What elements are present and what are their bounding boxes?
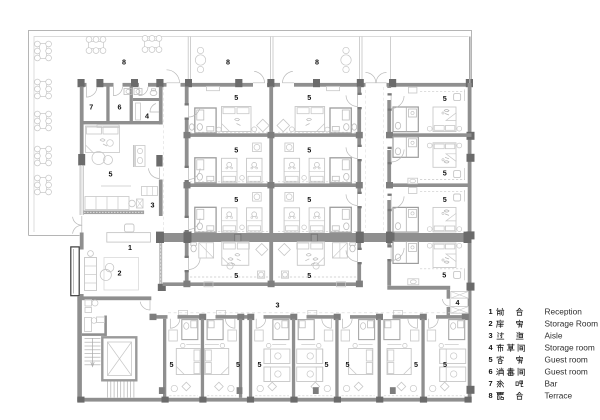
svg-text:5: 5 (488, 355, 492, 364)
svg-text:5: 5 (307, 271, 311, 280)
svg-text:5: 5 (346, 360, 350, 369)
svg-text:5: 5 (307, 146, 311, 155)
svg-text:6: 6 (488, 367, 492, 376)
svg-text:6: 6 (118, 103, 122, 112)
svg-text:5: 5 (443, 94, 447, 103)
svg-text:5: 5 (443, 169, 447, 178)
svg-text:8: 8 (226, 58, 230, 67)
svg-text:5: 5 (258, 360, 262, 369)
svg-text:5: 5 (234, 93, 238, 102)
svg-text:5: 5 (414, 360, 418, 369)
svg-text:5: 5 (170, 360, 174, 369)
svg-text:7: 7 (488, 379, 492, 388)
svg-text:1: 1 (128, 243, 132, 252)
svg-text:5: 5 (109, 170, 113, 179)
svg-text:5: 5 (307, 195, 311, 204)
svg-text:5: 5 (234, 195, 238, 204)
svg-text:8: 8 (315, 58, 319, 67)
svg-text:5: 5 (442, 271, 446, 280)
svg-text:3: 3 (151, 201, 155, 210)
svg-text:5: 5 (443, 360, 447, 369)
svg-text:5: 5 (443, 195, 447, 204)
svg-text:Guest room: Guest room (545, 354, 588, 364)
svg-text:Aisle: Aisle (545, 330, 563, 340)
svg-text:3: 3 (276, 301, 280, 310)
svg-text:Storage Room: Storage Room (545, 318, 599, 328)
svg-text:5: 5 (307, 93, 311, 102)
svg-text:Guest room: Guest room (545, 366, 588, 376)
svg-text:Reception: Reception (545, 306, 583, 316)
svg-text:3: 3 (488, 331, 492, 340)
svg-text:1: 1 (488, 307, 492, 316)
svg-text:8: 8 (122, 58, 126, 67)
svg-text:8: 8 (488, 391, 492, 400)
svg-text:5: 5 (236, 360, 240, 369)
svg-text:7: 7 (89, 103, 93, 112)
svg-text:5: 5 (234, 271, 238, 280)
svg-text:Bar: Bar (545, 378, 558, 388)
svg-text:4: 4 (145, 112, 149, 121)
svg-text:5: 5 (325, 360, 329, 369)
svg-text:4: 4 (456, 298, 460, 307)
svg-text:2: 2 (488, 319, 492, 328)
svg-text:2: 2 (118, 269, 122, 278)
svg-text:Terrace: Terrace (545, 390, 573, 400)
svg-text:5: 5 (234, 146, 238, 155)
svg-text:Storage room: Storage room (545, 342, 595, 352)
